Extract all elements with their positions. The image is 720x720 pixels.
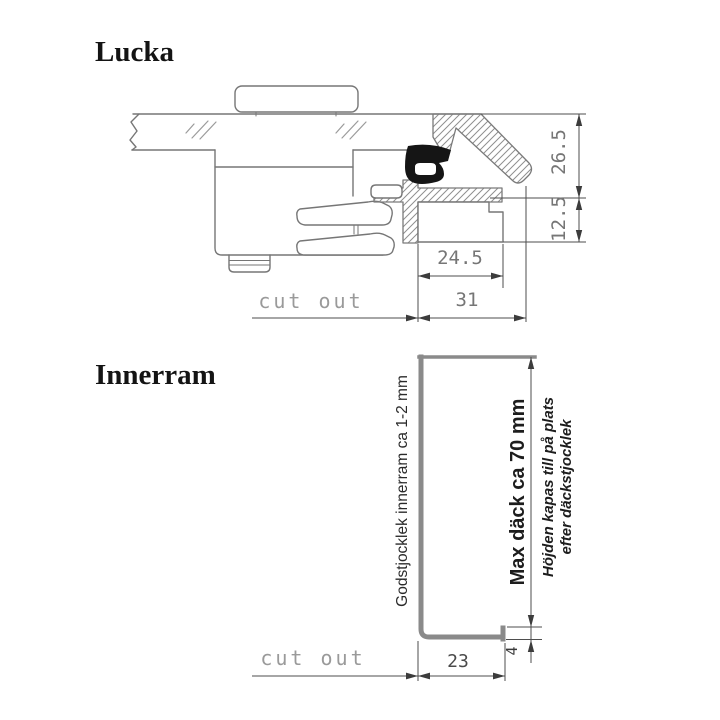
dim-24-5: 24.5 <box>437 247 483 269</box>
arrowhead-right-icon <box>493 673 505 680</box>
arrowhead-left-icon <box>418 315 430 322</box>
arrowhead-down-icon <box>576 186 582 198</box>
arrowhead-right-icon <box>514 315 526 322</box>
technical-drawing-canvas: Lucka <box>0 0 720 720</box>
max-deck-label: Max däck ca 70 mm <box>507 399 529 586</box>
material-mark-left <box>186 121 216 139</box>
lucka-title: Lucka <box>95 36 174 68</box>
arrowhead-up-icon <box>576 198 582 210</box>
hatch-lid-panel <box>130 114 481 150</box>
knob-body <box>235 86 358 112</box>
bottom-tab-ribs <box>229 261 270 266</box>
arrowhead-left-icon <box>418 273 430 280</box>
cutout-label: cut out <box>260 646 365 670</box>
profile-wall-and-base <box>421 357 501 637</box>
outer-frame-section <box>371 114 532 243</box>
dim-23: 23 <box>447 651 469 672</box>
lucka-diagram: Lucka <box>95 36 586 322</box>
height-note-line1: Höjden kapas till på plats <box>540 397 557 577</box>
prong-connector <box>354 225 358 234</box>
arrowhead-up-icon <box>528 357 534 369</box>
arrowhead-right-icon <box>491 273 503 280</box>
latch-upper-prong <box>297 201 392 225</box>
frame-base-outline <box>418 202 503 242</box>
lip-extension-lines <box>506 627 542 640</box>
rubber-seal-profile <box>405 145 451 184</box>
innerram-horizontal-dimensions: 23 cut out <box>252 641 505 681</box>
innerram-diagram: Innerram 4 Godstjocklek innerram ca 1-2 … <box>95 357 575 681</box>
latch-lower-prong <box>297 233 394 255</box>
dim-31: 31 <box>456 289 479 311</box>
arrowhead-down-icon <box>576 230 582 242</box>
material-mark-right <box>336 121 366 139</box>
dim-26-5: 26.5 <box>548 129 570 175</box>
cutout-label: cut out <box>258 289 363 313</box>
arrowhead-up-icon <box>528 640 534 652</box>
arrowhead-right-icon <box>406 315 418 322</box>
dim-4: 4 <box>503 646 521 655</box>
latch-hook-tab <box>371 185 402 198</box>
dim-12-5: 12.5 <box>548 196 570 242</box>
panel-break-line <box>130 114 139 150</box>
arrowhead-right-icon <box>406 673 418 680</box>
material-thickness-label: Godstjocklek innerram ca 1-2 mm <box>394 375 411 607</box>
housing-bottom-tab <box>229 255 270 272</box>
height-note-line2: efter däckstjocklek <box>558 419 575 555</box>
arrowhead-left-icon <box>418 673 430 680</box>
arrowhead-up-icon <box>576 114 582 126</box>
lock-knob <box>235 86 358 116</box>
latch-tongues <box>297 201 394 255</box>
innerram-title: Innerram <box>95 359 216 391</box>
frame-upper-flange-hatched <box>433 114 532 183</box>
arrowhead-down-icon <box>528 615 534 627</box>
